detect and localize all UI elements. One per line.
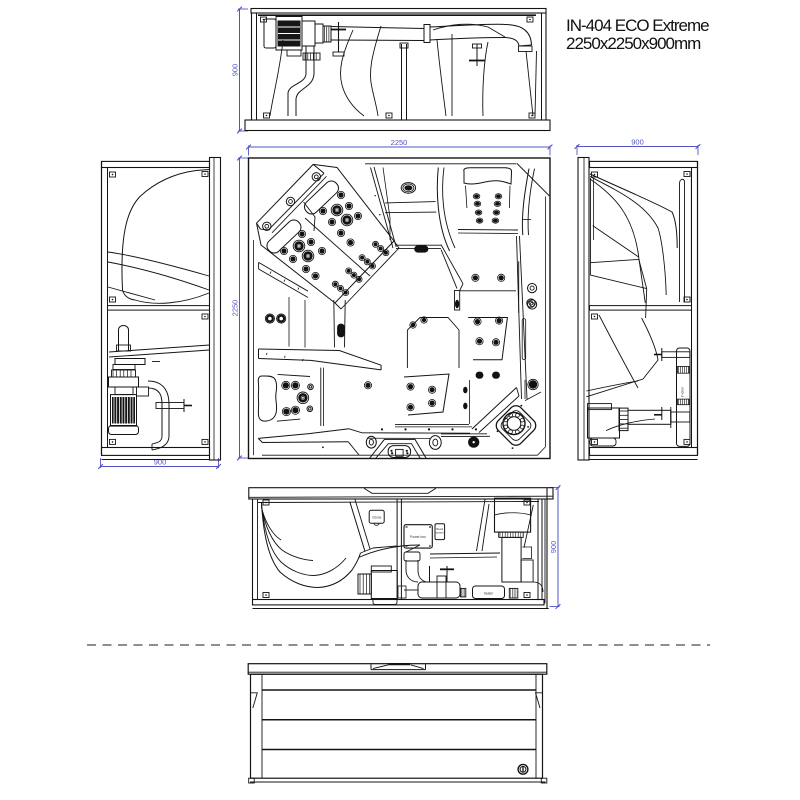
- svg-text:Ozone: Ozone: [372, 516, 382, 520]
- svg-text:IN-404 ECO Extreme: IN-404 ECO Extreme: [566, 16, 709, 35]
- svg-text:900: 900: [154, 458, 167, 467]
- svg-text:900: 900: [231, 64, 240, 77]
- svg-text:2250: 2250: [391, 138, 408, 147]
- svg-text:heater: heater: [484, 592, 494, 596]
- svg-text:2250: 2250: [231, 300, 240, 317]
- svg-text:900: 900: [631, 138, 644, 147]
- svg-text:system: system: [436, 531, 444, 535]
- svg-text:in-door: in-door: [681, 386, 685, 397]
- svg-text:Power box: Power box: [410, 535, 426, 539]
- svg-text:2250x2250x900mm: 2250x2250x900mm: [566, 34, 701, 53]
- svg-text:900: 900: [549, 541, 558, 554]
- svg-text:Board: Board: [436, 527, 443, 531]
